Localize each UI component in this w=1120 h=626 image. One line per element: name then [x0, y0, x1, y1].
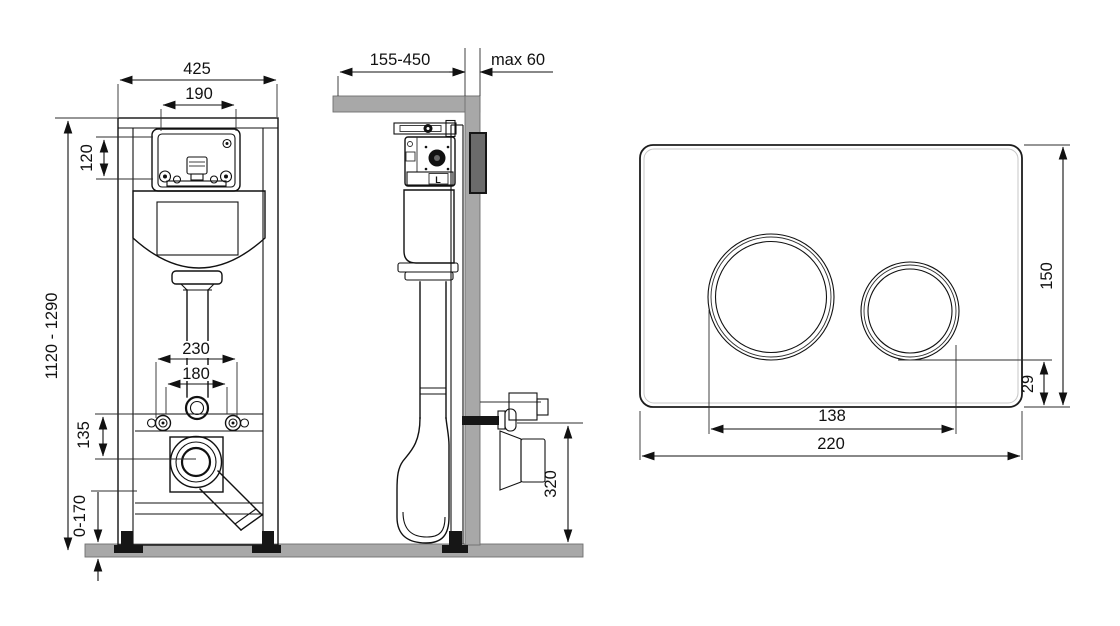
- dim-installation-depth-range: 155-450: [370, 51, 431, 69]
- dim-max-wall-thickness: max 60: [491, 51, 545, 69]
- service-opening: [152, 129, 240, 191]
- threaded-rod: [462, 416, 499, 425]
- fixing-crossbar: [135, 397, 263, 431]
- outlet-elbow-diagonal: [218, 471, 262, 515]
- filling-valve-detail: [187, 157, 207, 174]
- top-support-beam: [333, 96, 480, 112]
- cistern-side: [397, 190, 458, 543]
- valve-l-mark: L: [435, 175, 441, 185]
- dim-fixing-span-inner: 180: [182, 365, 210, 383]
- wall-bracket-arm: [394, 121, 456, 137]
- outlet-connector-cone: [500, 431, 521, 490]
- dim-fixing-span-outer: 230: [182, 340, 210, 358]
- inspection-shaft-side: [470, 133, 486, 193]
- water-supply-fitting: [509, 393, 537, 420]
- outlet-socket: [171, 437, 222, 488]
- water-inlet-connection: [186, 397, 208, 419]
- dim-service-opening-height: 120: [78, 144, 96, 172]
- installation-drawing-svg: L: [0, 0, 1120, 626]
- dim-front-overall-width: 425: [183, 60, 211, 78]
- dim-plate-height: 150: [1038, 262, 1056, 290]
- dim-button-bottom-offset: 29: [1019, 375, 1037, 393]
- flush-plate-body: [640, 145, 1022, 407]
- outlet-assembly-front: [135, 437, 263, 531]
- frame-outline: [118, 118, 278, 545]
- side-foot: [449, 531, 462, 545]
- floor-slab: [85, 544, 583, 557]
- flush-plate-view: [640, 145, 1022, 407]
- dim-service-opening-width: 190: [185, 85, 213, 103]
- front-view-frame: [114, 118, 281, 553]
- building-structure: [85, 96, 583, 557]
- dim-outlet-offset: 135: [75, 421, 93, 449]
- dim-outlet-height: 320: [542, 470, 560, 498]
- technical-drawing-canvas: L: [0, 0, 1120, 626]
- dim-feet-adjustment-range: 0-170: [71, 495, 89, 537]
- dim-button-span: 138: [818, 407, 846, 425]
- dim-frame-height-range: 1120 - 1290: [43, 293, 61, 380]
- valve-unit-side: L: [405, 137, 455, 186]
- dim-plate-width: 220: [817, 435, 845, 453]
